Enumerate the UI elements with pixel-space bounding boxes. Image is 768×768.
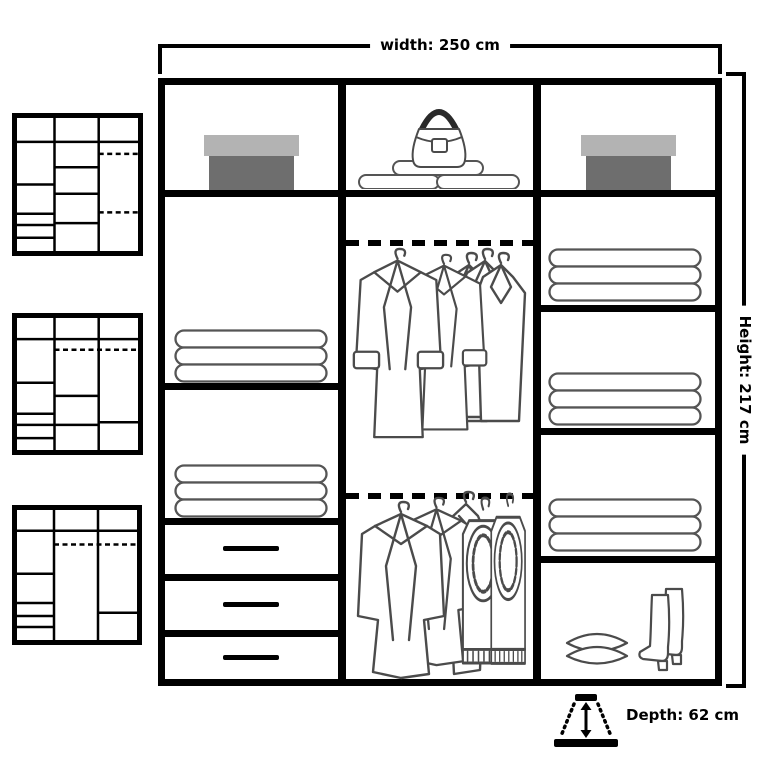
depth-icon (554, 694, 618, 748)
folded-towels-icon (174, 329, 328, 383)
left-shelf-line-1 (165, 383, 338, 390)
width-dimension-line: width: 250 cm (158, 44, 722, 74)
depth-dimension-label: Depth: 62 cm (626, 706, 739, 724)
vertical-divider-left (338, 85, 346, 679)
box-lid (204, 135, 299, 156)
drawer-divider-2 (165, 630, 338, 637)
wardrobe-variant-thumbnail-2 (12, 313, 143, 455)
right-shelf-line-3 (541, 556, 715, 563)
wardrobe-dimension-diagram: width: 250 cm Height: 217 cm Depth: 62 c… (0, 0, 768, 768)
handbag-icon (357, 91, 522, 189)
folded-towels-icon (548, 498, 702, 552)
folded-towels-icon (174, 464, 328, 518)
right-shelf-line-2 (541, 428, 715, 435)
right-shelf-line-1 (541, 305, 715, 312)
wardrobe-front-view (158, 78, 722, 686)
drawer-handle-3 (223, 655, 279, 660)
box-lid (581, 135, 676, 156)
pillows-and-boots-icon (563, 587, 693, 672)
drawer-handle-2 (223, 602, 279, 607)
folded-towels-icon (548, 372, 702, 426)
hanging-coats-icon (349, 231, 529, 446)
top-shelf-line (165, 190, 715, 197)
folded-towels-icon (548, 248, 702, 302)
vertical-divider-right (533, 85, 541, 679)
height-dimension-label: Height: 217 cm (736, 306, 754, 455)
box-body (586, 156, 671, 190)
drawer-divider-1 (165, 574, 338, 581)
depth-dimension: Depth: 62 cm (554, 694, 764, 754)
storage-box-icon-left (204, 135, 299, 190)
storage-box-icon-right (581, 135, 676, 190)
box-body (209, 156, 294, 190)
left-shelf-line-2 (165, 518, 338, 525)
wardrobe-variant-thumbnail-1 (12, 113, 143, 256)
wardrobe-variant-thumbnail-3 (12, 505, 142, 645)
height-dimension-line: Height: 217 cm (726, 72, 746, 688)
hanging-jackets-jeans-icon (349, 484, 529, 684)
width-dimension-label: width: 250 cm (370, 36, 510, 54)
drawer-handle-1 (223, 546, 279, 551)
